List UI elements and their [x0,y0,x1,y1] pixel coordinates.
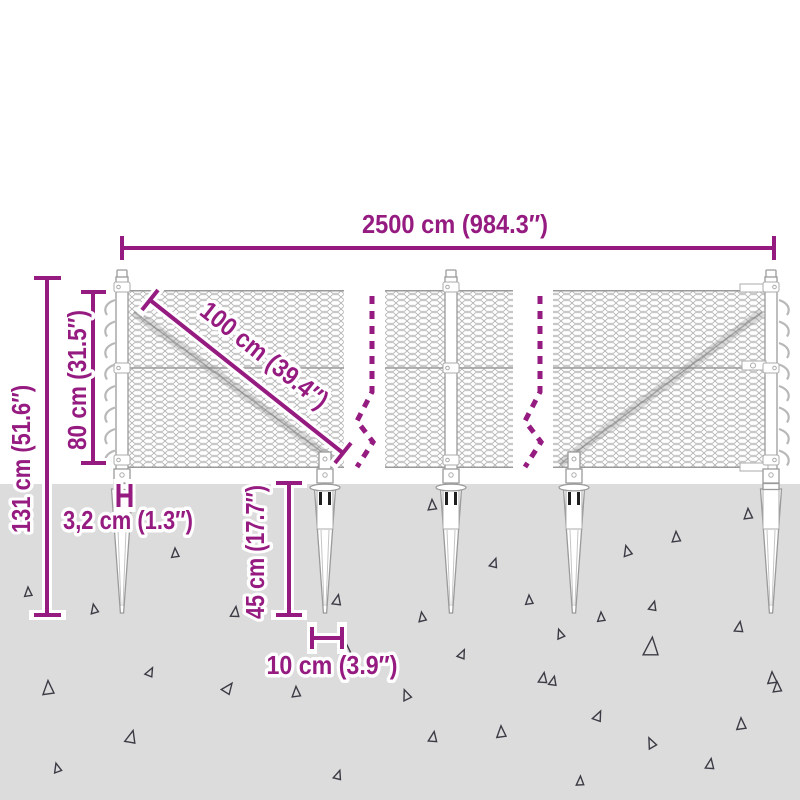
binding-wire-curl [779,300,789,315]
spike-collar [763,484,779,490]
clamp-bolt [773,458,777,462]
fence-dimension-diagram: 2500 cm (984.3″) 131 cm (51.6″) 80 cm (3… [0,0,800,800]
clamp-bolt [117,458,121,462]
spike-slot [328,492,331,505]
clamp-bolt [446,366,450,370]
bracket-bolt [449,473,453,477]
binding-wire-curl [779,408,789,423]
binding-wire-curl [779,365,789,380]
clamp-bolt [117,285,121,289]
fence-post-inner-right [568,452,580,470]
binding-wire-curl [105,408,115,423]
spike-flange [310,484,340,491]
fence-post-left [116,270,128,487]
break-mark-right [525,296,541,467]
binding-wire-curl [105,429,115,444]
binding-wire-curl [779,322,789,337]
dim-spike-width-label: 10 cm (3.9″) [267,650,398,680]
bracket-bolt [323,473,327,477]
binding-wire-curl [105,300,115,315]
binding-wire-curl [779,386,789,401]
spike-slot [577,492,580,505]
fence-panel-right [553,290,765,468]
fence-post-middle [445,270,457,487]
dim-fence-height-label: 80 cm (31.5″) [62,310,92,450]
binding-wire-curl [779,429,789,444]
dim-spike-depth-label: 45 cm (17.7″) [240,485,270,619]
clamp-bolt [446,458,450,462]
dim-total-width: 2500 cm (984.3″) [122,209,774,260]
clamp-bolt [773,366,777,370]
spike-flange [559,484,589,491]
dim-fence-height: 80 cm (31.5″) [62,292,106,463]
break-mark-left [357,296,373,467]
dim-total-height-label: 131 cm (51.6″) [6,385,36,533]
bracket-bolt [572,473,576,477]
bracket-bolt [120,473,124,477]
clamp-bolt [117,366,121,370]
fence-post-inner-left [319,452,331,470]
dim-post-width-label: 3,2 cm (1.3″) [63,505,193,535]
spike-slot [445,492,448,505]
spike-slot [568,492,571,505]
clamp-bolt [773,285,777,289]
spike-sleeve [763,489,779,529]
diagram-svg: 2500 cm (984.3″) 131 cm (51.6″) 80 cm (3… [0,0,800,800]
binding-wire-curl [105,343,115,358]
spike-slot [319,492,322,505]
clamp-bolt [446,285,450,289]
binding-wire-curl [105,386,115,401]
bracket-bolt [769,473,773,477]
spike-slot [454,492,457,505]
binding-wire-curl [779,451,789,466]
dim-total-width-label: 2500 cm (984.3″) [362,209,548,239]
binding-wire-curl [779,343,789,358]
spike-flange [436,484,466,491]
binding-wire-curl [105,322,115,337]
